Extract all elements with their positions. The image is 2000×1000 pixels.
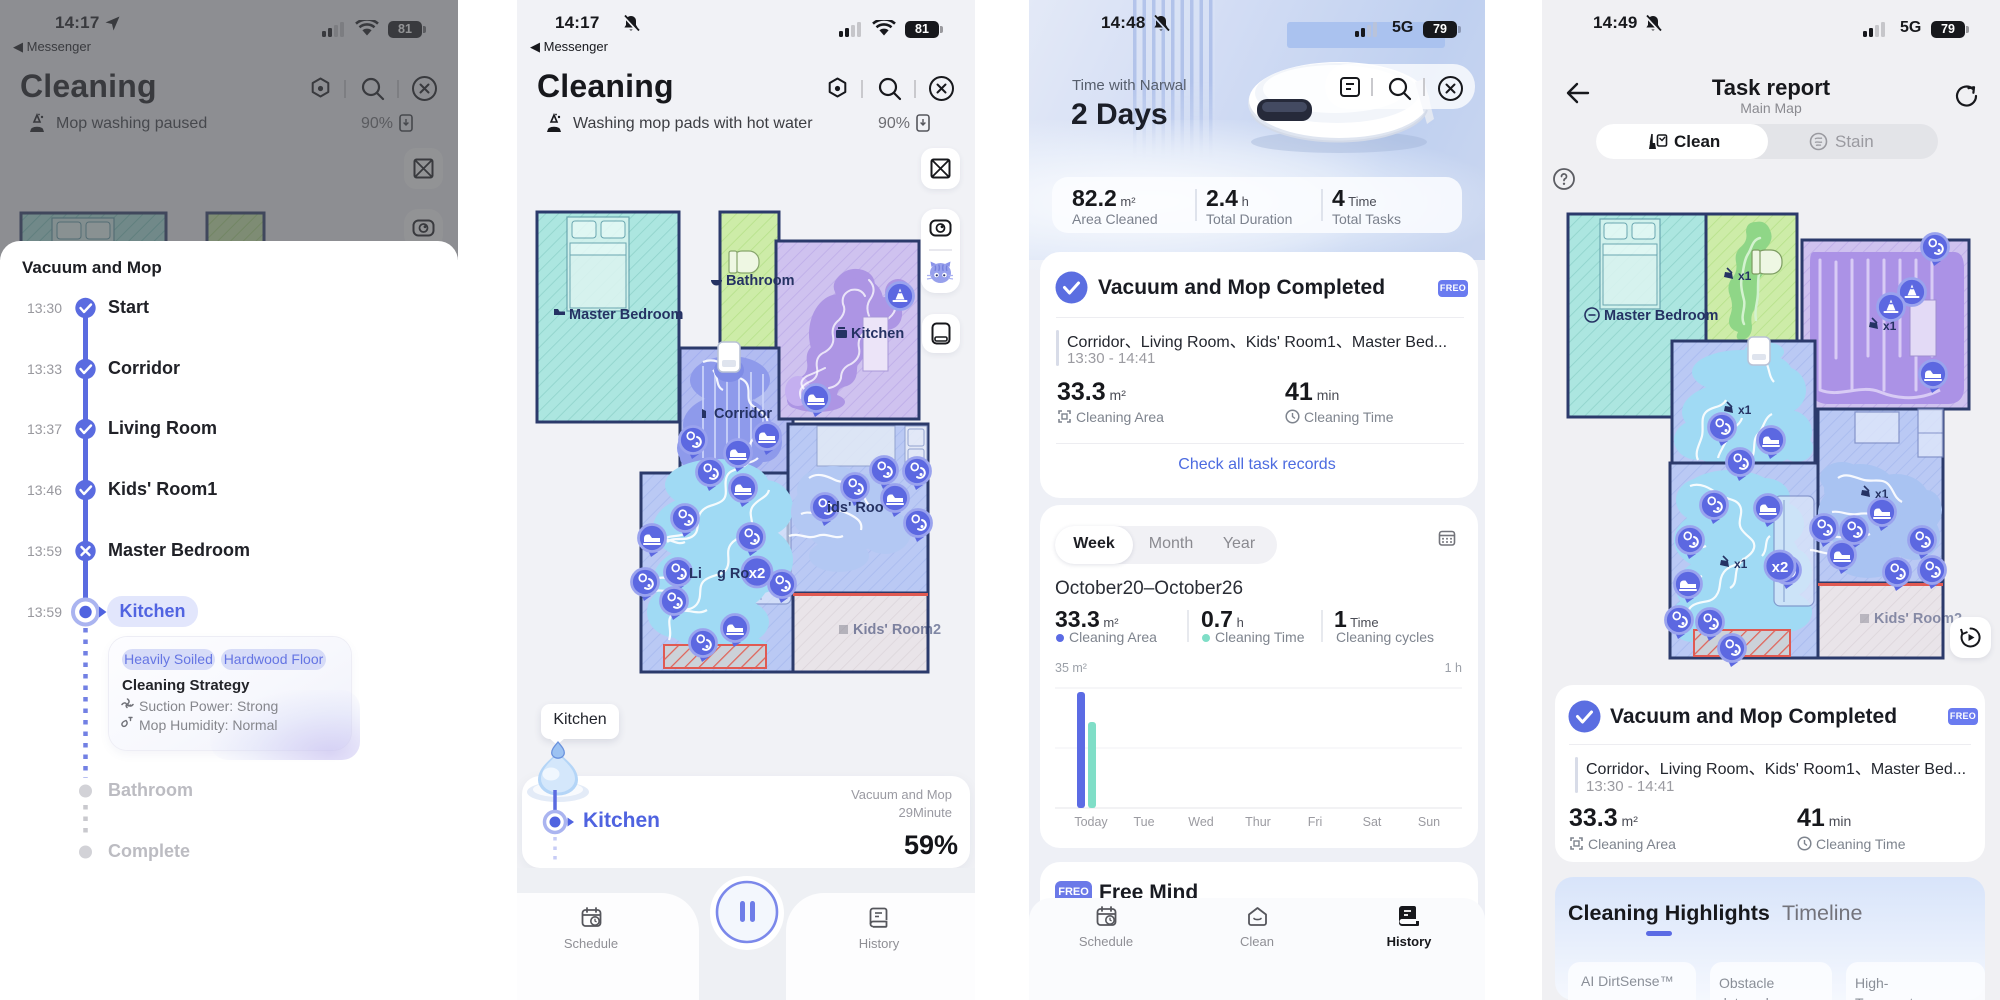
svg-text:x1: x1 (1738, 269, 1752, 283)
svg-text:g Ro: g Ro (717, 566, 749, 582)
svg-text:Master Bedroom: Master Bedroom (1604, 308, 1718, 324)
svg-text:x2: x2 (1772, 559, 1789, 576)
svg-text:x2: x2 (749, 565, 766, 582)
svg-text:Li: Li (689, 566, 702, 582)
svg-text:Corridor: Corridor (714, 406, 772, 422)
svg-text:Master Bedroom: Master Bedroom (569, 307, 683, 323)
svg-text:Bathroom: Bathroom (726, 273, 794, 289)
svg-text:x1: x1 (1734, 557, 1748, 571)
svg-text:Kids' Room2: Kids' Room2 (853, 622, 941, 638)
svg-text:ids' Roo: ids' Roo (827, 500, 884, 516)
svg-text:Kitchen: Kitchen (851, 326, 904, 342)
svg-text:Kids' Room2: Kids' Room2 (1874, 611, 1962, 627)
svg-text:x1: x1 (1738, 403, 1752, 417)
